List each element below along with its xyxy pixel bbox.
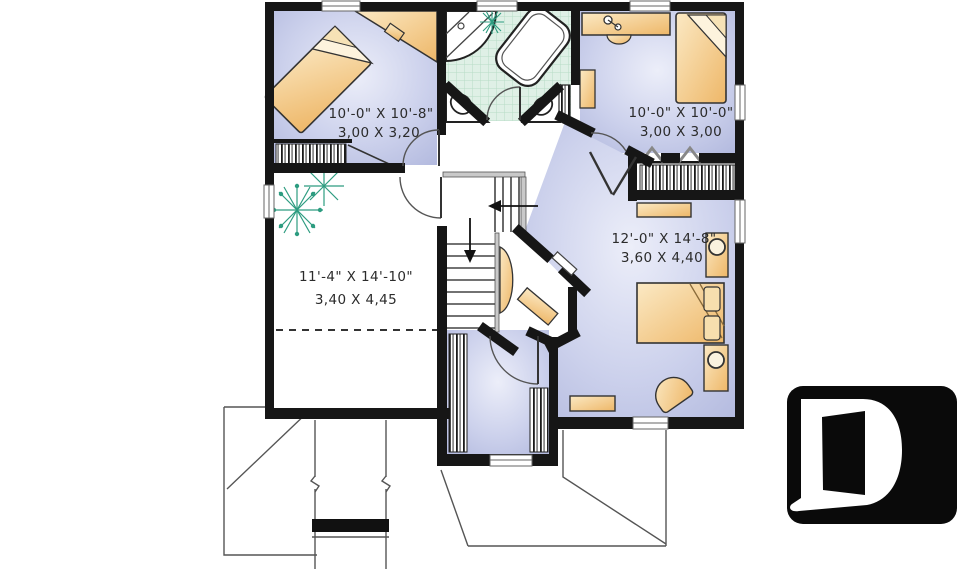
closet-rod-walkin-right: [530, 388, 548, 452]
roof-hip-line: [563, 430, 666, 544]
stair-railing: [521, 177, 526, 233]
dresser: [580, 70, 595, 108]
floor-plan-svg: 10'-0" X 10'-8" 3,00 X 3,20 10'-0" X 10'…: [0, 0, 960, 569]
closet-rod-bedroom2: [640, 165, 735, 191]
bedroom2-dim-imperial: 10'-0" X 10'-0": [629, 105, 734, 121]
brand-logo: [787, 386, 957, 524]
dresser-top: [637, 203, 691, 217]
wall-bedroom1-bath: [437, 2, 446, 135]
bonus-dim-metric: 3,40 X 4,45: [315, 292, 397, 308]
roof-line: [224, 407, 317, 555]
plant-icon: [480, 10, 504, 34]
bedroom2-dim-metric: 3,00 X 3,00: [640, 124, 722, 140]
lamp-icon: [708, 352, 724, 368]
wall-master-top: [628, 190, 744, 200]
stair-railing: [495, 233, 499, 332]
window: [735, 200, 745, 243]
wall-bath-bedroom2: [571, 2, 580, 85]
window: [630, 1, 670, 11]
window: [477, 1, 517, 11]
roof-break-marks: [310, 476, 391, 532]
bed-single: [676, 13, 726, 103]
window: [322, 1, 360, 11]
window: [264, 185, 274, 218]
bedroom1-dim-imperial: 10'-0" X 10'-8": [329, 106, 434, 122]
closet-rod-bedroom1: [276, 144, 346, 165]
desk: [582, 13, 670, 35]
master-dim-imperial: 12'-0" X 14'-8": [612, 231, 717, 247]
console-table: [500, 247, 513, 313]
window: [490, 455, 532, 466]
roof-hip-line: [441, 470, 468, 546]
pillow: [704, 316, 720, 340]
wall-bedroom2-bottom: [699, 153, 744, 162]
window: [735, 85, 745, 120]
staircase: [443, 172, 538, 332]
pillow: [704, 287, 720, 311]
wall-bonus-right: [437, 226, 447, 466]
roof-hip-line: [227, 409, 311, 489]
window: [633, 417, 668, 429]
bedroom1-dim-metric: 3,00 X 3,20: [338, 125, 420, 141]
wall-bedroom2-bottom: [661, 153, 680, 162]
corner-shelf: [518, 288, 558, 325]
floor-plan-page: 10'-0" X 10'-8" 3,00 X 3,20 10'-0" X 10'…: [0, 0, 960, 569]
stair-railing: [443, 172, 525, 177]
closet-rod-walkin-left: [449, 334, 467, 452]
bonus-dim-imperial: 11'-4" X 14'-10": [299, 269, 413, 285]
master-dim-metric: 3,60 X 4,40: [621, 250, 703, 266]
porch-step-bar: [312, 519, 389, 532]
wall-bonus-bottom: [265, 408, 450, 419]
wall-bedroom1-bottom: [265, 163, 405, 173]
dresser-bottom: [570, 396, 615, 411]
